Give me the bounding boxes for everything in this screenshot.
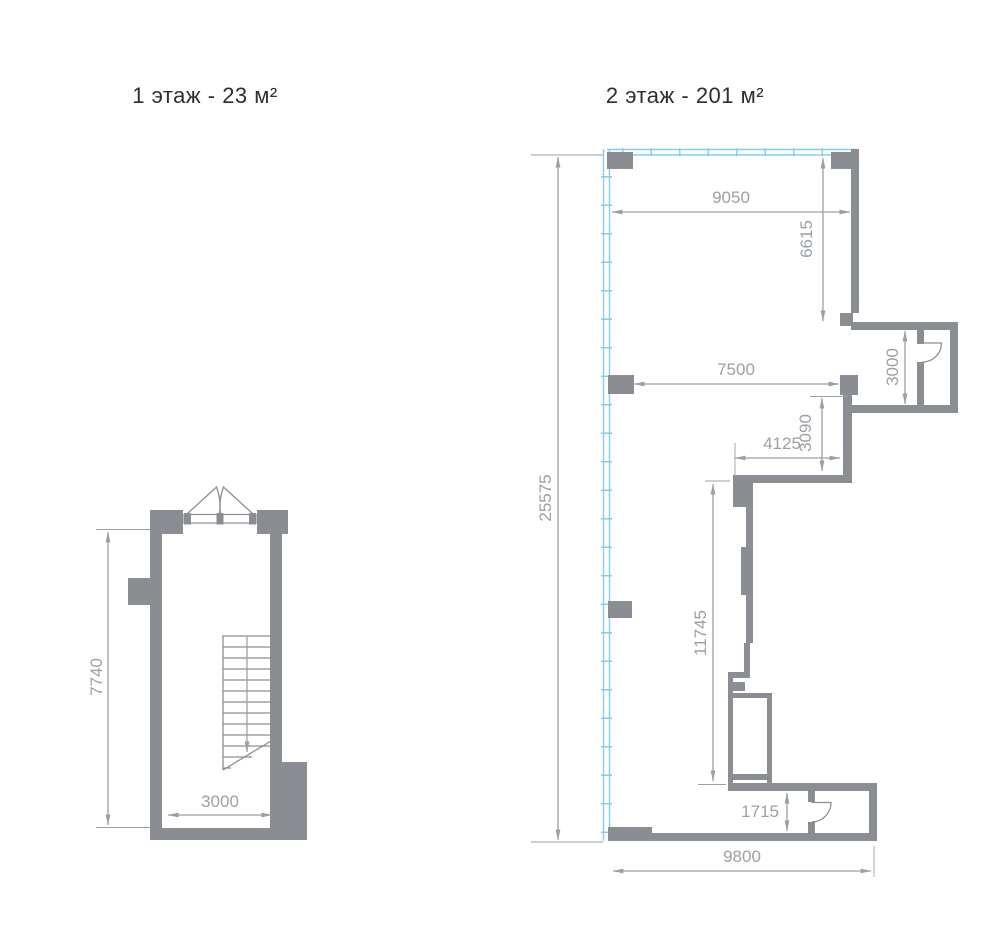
dim-floor1-width: 3000 bbox=[168, 792, 272, 815]
floor2-plan: 2 этаж - 201 м² bbox=[531, 83, 958, 877]
dim-label-4125: 4125 bbox=[763, 434, 801, 453]
dim-side-room-depth: 3000 bbox=[883, 331, 905, 404]
floorplan-canvas: 1 этаж - 23 м² bbox=[0, 0, 1000, 926]
dim-right-depth: 6615 bbox=[797, 158, 823, 321]
door-swing-left-icon bbox=[187, 487, 220, 514]
dim-step-width: 4125 bbox=[735, 434, 840, 477]
staircase bbox=[223, 636, 271, 770]
floorplan-image: 1 этаж - 23 м² bbox=[0, 0, 1000, 926]
dim-inner-wall: 11745 bbox=[691, 481, 730, 785]
entry-double-door bbox=[184, 487, 256, 525]
floor2-title: 2 этаж - 201 м² bbox=[606, 83, 764, 108]
column bbox=[608, 601, 632, 618]
dim-overall-height: 25575 bbox=[531, 155, 603, 842]
dim-label-11745: 11745 bbox=[691, 610, 710, 656]
dim-floor1-height: 7740 bbox=[87, 530, 150, 828]
floor1-title: 1 этаж - 23 м² bbox=[132, 83, 277, 108]
door-swing-entry-icon bbox=[812, 803, 832, 823]
dim-label-9050: 9050 bbox=[712, 188, 750, 207]
floor2-walls bbox=[607, 149, 958, 841]
column bbox=[840, 375, 858, 395]
dim-label-9800: 9800 bbox=[723, 847, 761, 866]
dim-entry-depth: 1715 bbox=[741, 793, 787, 831]
door-swing-side-room-icon bbox=[923, 343, 942, 362]
door-swing-right-icon bbox=[220, 487, 253, 514]
column bbox=[607, 152, 633, 169]
dim-step-depth: 3090 bbox=[796, 397, 848, 472]
floor1-walls bbox=[128, 510, 307, 840]
dim-overall-width: 9800 bbox=[613, 846, 874, 877]
elevator-shaft bbox=[728, 693, 772, 785]
dim-top-width: 9050 bbox=[612, 188, 850, 212]
shaft-divider bbox=[733, 774, 767, 780]
dim-label-25575: 25575 bbox=[536, 474, 555, 521]
dim-label-6615: 6615 bbox=[797, 220, 816, 258]
dim-label-7500: 7500 bbox=[717, 360, 755, 379]
dim-mid-width: 7500 bbox=[634, 360, 839, 384]
dim-label-3000-room: 3000 bbox=[883, 348, 902, 386]
floor1-plan: 1 этаж - 23 м² bbox=[87, 83, 307, 840]
dim-label-7740: 7740 bbox=[87, 658, 106, 696]
column bbox=[608, 375, 634, 394]
dim-label-1715: 1715 bbox=[741, 802, 779, 821]
dim-label-3000-floor1: 3000 bbox=[201, 792, 239, 811]
